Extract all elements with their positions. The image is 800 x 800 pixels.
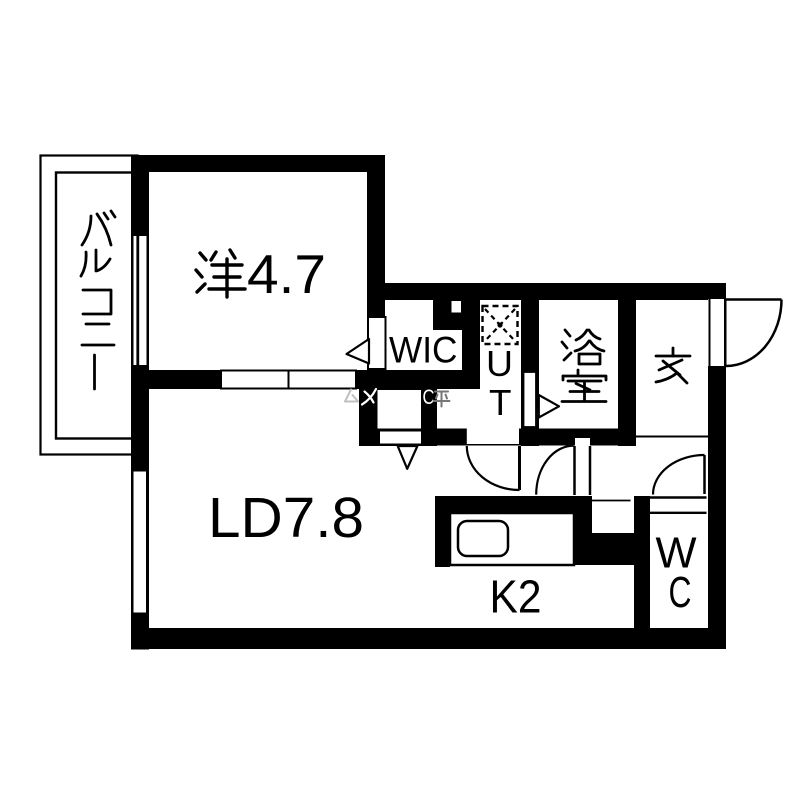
svg-text:T: T xyxy=(489,382,512,423)
svg-text:U: U xyxy=(486,343,513,384)
svg-text:C: C xyxy=(669,569,692,617)
svg-text:LD7.8: LD7.8 xyxy=(208,486,364,550)
svg-text:C: C xyxy=(423,386,435,409)
svg-text:4.7: 4.7 xyxy=(247,243,326,305)
svg-text:WIC: WIC xyxy=(389,330,458,371)
svg-text:K2: K2 xyxy=(490,571,542,623)
